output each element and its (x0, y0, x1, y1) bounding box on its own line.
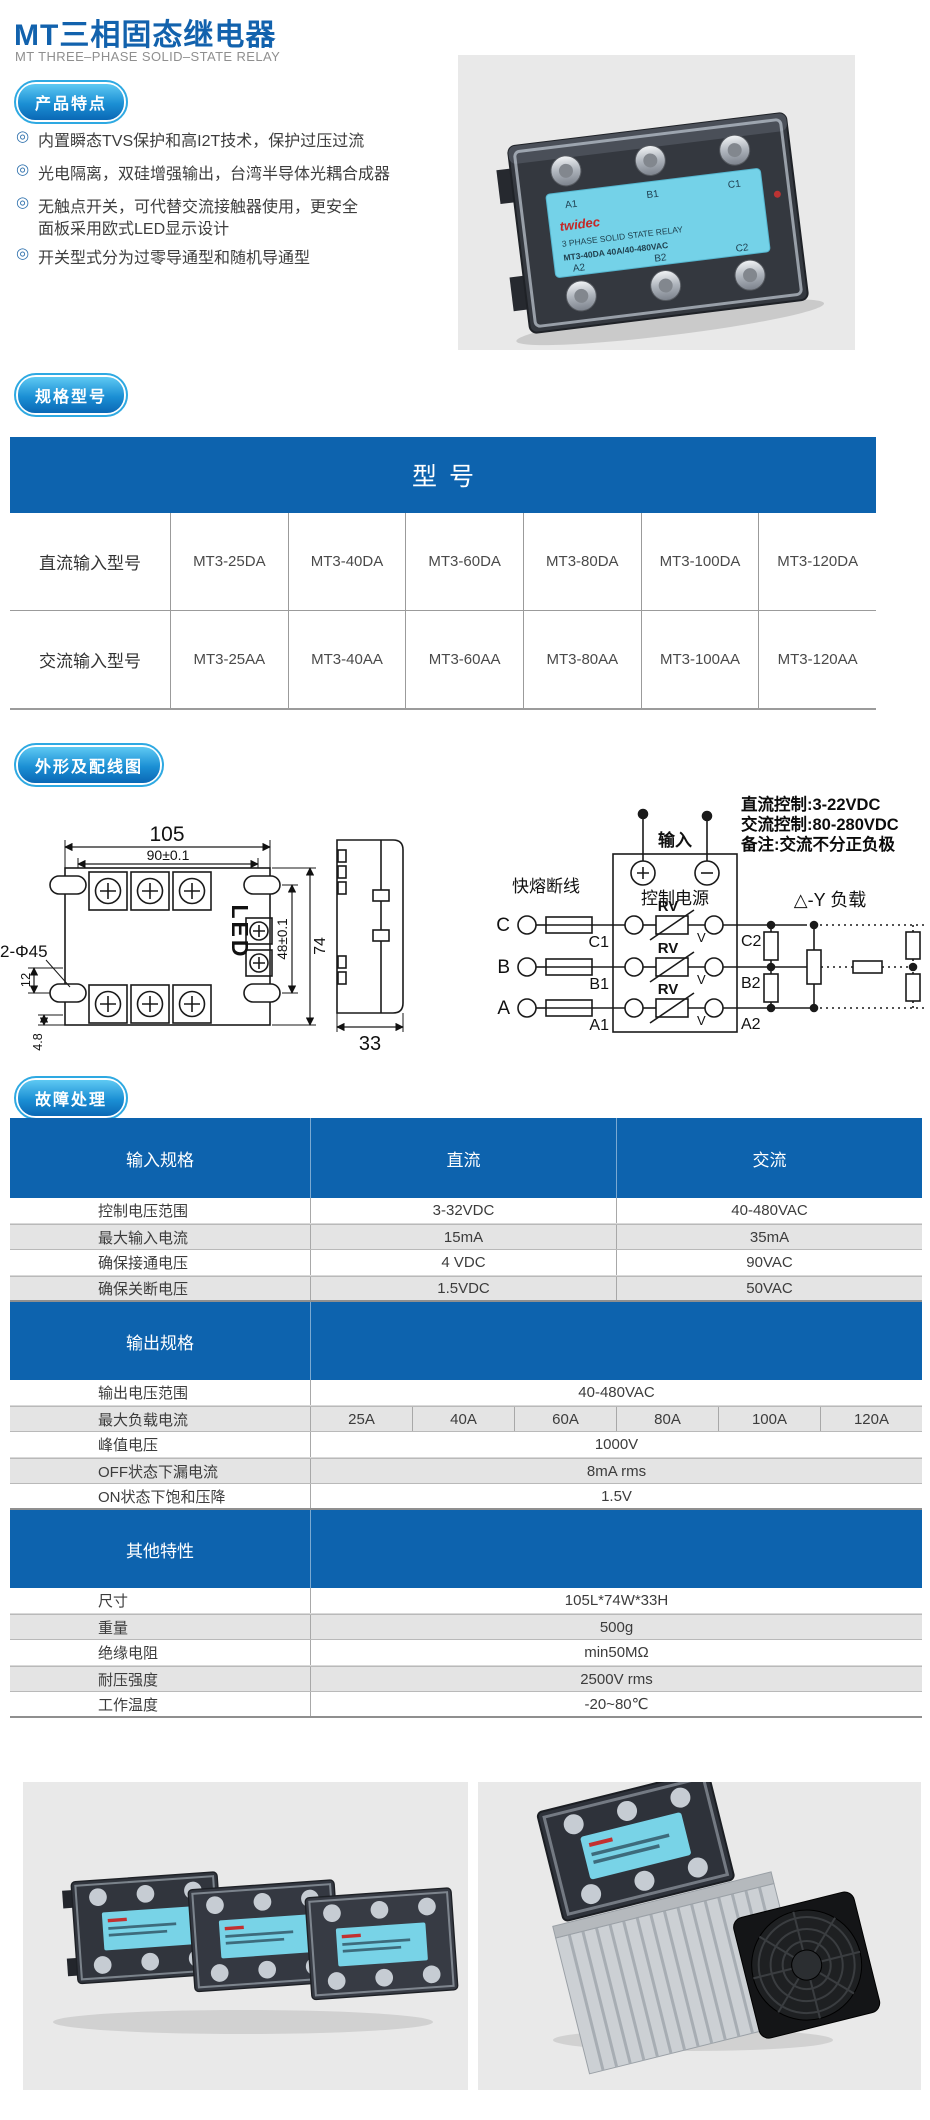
feature-item: ◎ 开关型式分为过零导通型和随机导通型 (16, 244, 310, 268)
wiring-schematic: 直流控制:3-22VDC 交流控制:80-280VDC 备注:交流不分正负极 输… (496, 794, 928, 1034)
table-row: 交流输入型号 MT3-25AA MT3-40AA MT3-60AA MT3-80… (10, 611, 876, 710)
phase-label: C (496, 915, 510, 936)
fuse-label: 快熔断线 (512, 877, 580, 896)
page-subtitle: MT THREE–PHASE SOLID–STATE RELAY (15, 49, 280, 64)
control-note: 备注:交流不分正负极 (740, 834, 895, 854)
row-value: 40-480VAC (310, 1380, 922, 1405)
feature-text: 面板采用欧式LED显示设计 (38, 215, 229, 239)
faults-badge: 故障处理 (14, 1076, 128, 1120)
outline-badge-label: 外形及配线图 (18, 747, 160, 783)
table-row: ON状态下饱和压降 1.5V (10, 1484, 922, 1510)
feature-text: 光电隔离，双硅增强输出，台湾半导体光耦合成器 (38, 160, 390, 184)
three-relays-illustration (23, 1782, 468, 2090)
model-cell: MT3-100AA (641, 611, 759, 708)
side-view-drawing (337, 840, 403, 1032)
table-row: 绝缘电阻 min50MΩ (10, 1640, 922, 1666)
row-label: 输出电压范围 (10, 1380, 310, 1405)
amp-cell: 120A (820, 1407, 922, 1431)
out-terminal-label: C2 (741, 933, 762, 950)
row-value: -20~80℃ (310, 1692, 922, 1716)
table-row: 重量 500g (10, 1614, 922, 1640)
row-label: 确保关断电压 (10, 1277, 310, 1300)
model-cell: MT3-40AA (288, 611, 406, 708)
row-label: 控制电压范围 (10, 1198, 310, 1223)
features-badge: 产品特点 (14, 80, 128, 124)
row-label: ON状态下饱和压降 (10, 1484, 310, 1508)
dim-holes: 2-Φ45 (0, 942, 48, 961)
header-cell: 其他特性 (10, 1510, 310, 1588)
dim-depth: 33 (359, 1033, 381, 1055)
header-cell: 输入规格 (10, 1118, 310, 1198)
amp-cell: 25A (310, 1407, 412, 1431)
row-value: 8mA rms (310, 1459, 922, 1483)
row-value: 1000V (310, 1432, 922, 1457)
header-cell (310, 1510, 922, 1588)
model-cell: MT3-80DA (523, 513, 641, 610)
feature-item: ◎ 光电隔离，双硅增强输出，台湾半导体光耦合成器 (16, 160, 390, 184)
amp-cell: 60A (514, 1407, 616, 1431)
bullet-icon: ◎ (16, 244, 38, 268)
row-label: 最大负载电流 (10, 1407, 310, 1431)
row-label: 交流输入型号 (10, 611, 170, 708)
front-view-drawing (28, 840, 316, 1025)
header-cell: 输出规格 (10, 1302, 310, 1380)
row-label: 重量 (10, 1615, 310, 1639)
row-label: OFF状态下漏电流 (10, 1459, 310, 1483)
table-row: 确保接通电压 4 VDC 90VAC (10, 1250, 922, 1276)
features-badge-label: 产品特点 (18, 84, 124, 120)
feature-item: ◎ 无触点开关，可代替交流接触器使用，更安全 (16, 193, 358, 217)
input-label: 输入 (658, 830, 692, 850)
model-cell: MT3-120DA (758, 513, 876, 610)
amp-cell: 80A (616, 1407, 718, 1431)
table-row: 输出电压范围 40-480VAC (10, 1380, 922, 1406)
terminal-label: C2 (735, 242, 749, 255)
amp-cell: 40A (412, 1407, 514, 1431)
page-title: MT三相固态继电器 (14, 10, 276, 54)
dc-value: 3-32VDC (310, 1198, 616, 1223)
out-terminal-label: B2 (741, 975, 761, 992)
feature-text: 内置瞬态TVS保护和高I2T技术，保护过压过流 (38, 127, 364, 151)
row-label: 峰值电压 (10, 1432, 310, 1457)
product-photo-hero: A1 B1 C1 twidec 3 PHASE SOLID STATE RELA… (458, 55, 855, 350)
feature-text: 开关型式分为过零导通型和随机导通型 (38, 244, 310, 268)
table-row: 耐压强度 2500V rms (10, 1666, 922, 1692)
row-label: 确保接通电压 (10, 1250, 310, 1275)
row-label: 直流输入型号 (10, 513, 170, 610)
table-row: 直流输入型号 MT3-25DA MT3-40DA MT3-60DA MT3-80… (10, 513, 876, 611)
dim-height-outer: 74 (312, 937, 329, 955)
row-value: min50MΩ (310, 1640, 922, 1665)
header-cell (310, 1302, 922, 1380)
terminal-label: B2 (654, 252, 668, 264)
input-spec-header: 输入规格 直流 交流 (10, 1118, 922, 1198)
product-page: MT三相固态继电器 MT THREE–PHASE SOLID–STATE REL… (0, 0, 930, 2120)
product-photo-group (23, 1782, 468, 2090)
table-row: 工作温度 -20~80℃ (10, 1692, 922, 1718)
in-terminal-label: B1 (589, 976, 609, 993)
dim-offset2: 4.8 (31, 1033, 45, 1050)
dc-value: 15mA (310, 1225, 616, 1249)
control-note: 交流控制:80-280VDC (741, 814, 899, 834)
product-photo-heatsink (478, 1782, 921, 2090)
ac-value: 50VAC (616, 1277, 922, 1300)
other-spec-header: 其他特性 (10, 1510, 922, 1588)
model-cell: MT3-25AA (170, 611, 288, 708)
terminal-label: B1 (646, 189, 660, 201)
dim-offset1: 12 (18, 973, 33, 987)
model-cell: MT3-60DA (405, 513, 523, 610)
control-note: 直流控制:3-22VDC (741, 794, 880, 814)
dim-width-inner: 90±0.1 (147, 847, 190, 863)
in-terminal-label: C1 (589, 934, 610, 951)
row-label: 最大输入电流 (10, 1225, 310, 1249)
varistor-v: V (697, 1013, 706, 1028)
ac-value: 90VAC (616, 1250, 922, 1275)
phase-label: B (497, 957, 510, 978)
dim-height-inner: 48±0.1 (275, 918, 290, 959)
row-value: 1.5V (310, 1484, 922, 1508)
output-spec-header: 输出规格 (10, 1302, 922, 1380)
ac-value: 35mA (616, 1225, 922, 1249)
model-cell: MT3-80AA (523, 611, 641, 708)
model-cell: MT3-40DA (288, 513, 406, 610)
model-table: 型号 直流输入型号 MT3-25DA MT3-40DA MT3-60DA MT3… (10, 437, 876, 710)
relay-illustration: A1 B1 C1 twidec 3 PHASE SOLID STATE RELA… (458, 55, 855, 350)
models-badge-label: 规格型号 (18, 377, 124, 413)
model-cell: MT3-100DA (641, 513, 759, 610)
table-row: 控制电压范围 3-32VDC 40-480VAC (10, 1198, 922, 1224)
table-row: 最大输入电流 15mA 35mA (10, 1224, 922, 1250)
table-row: 尺寸 105L*74W*33H (10, 1588, 922, 1614)
dc-value: 1.5VDC (310, 1277, 616, 1300)
varistor-v: V (697, 972, 706, 987)
model-cell: MT3-120AA (758, 611, 876, 708)
relay-mini (62, 1872, 458, 2000)
varistor-label: RV (658, 898, 679, 915)
feature-text: 无触点开关，可代替交流接触器使用，更安全 (38, 193, 358, 217)
heatsink-fan-illustration (478, 1782, 921, 2090)
table-row: OFF状态下漏电流 8mA rms (10, 1458, 922, 1484)
varistor-label: RV (658, 940, 679, 957)
spec-table: 输入规格 直流 交流 控制电压范围 3-32VDC 40-480VAC 最大输入… (10, 1118, 922, 1718)
table-row: 峰值电压 1000V (10, 1432, 922, 1458)
amp-cell: 100A (718, 1407, 820, 1431)
header-cell: 交流 (616, 1118, 922, 1198)
phase-label: A (497, 998, 510, 1019)
table-row: 最大负载电流 25A 40A 60A 80A 100A 120A (10, 1406, 922, 1432)
dc-value: 4 VDC (310, 1250, 616, 1275)
row-value: 500g (310, 1615, 922, 1639)
terminal-label: A2 (572, 262, 586, 274)
header-cell: 直流 (310, 1118, 616, 1198)
load-label: △-Y 负载 (794, 890, 867, 910)
bullet-icon: ◎ (16, 160, 38, 184)
bullet-icon: ◎ (16, 193, 38, 217)
models-badge: 规格型号 (14, 373, 128, 417)
row-value: 105L*74W*33H (310, 1588, 922, 1613)
row-label: 绝缘电阻 (10, 1640, 310, 1665)
row-label: 耐压强度 (10, 1667, 310, 1691)
feature-item: ◎ 内置瞬态TVS保护和高I2T技术，保护过压过流 (16, 127, 364, 151)
terminal-label: C1 (727, 179, 741, 192)
varistor-v: V (697, 930, 706, 945)
model-table-header: 型号 (10, 437, 876, 513)
faults-badge-label: 故障处理 (18, 1080, 124, 1116)
row-label: 尺寸 (10, 1588, 310, 1613)
dim-width-outer: 105 (149, 823, 184, 846)
varistor-label: RV (658, 981, 679, 998)
model-cell: MT3-25DA (170, 513, 288, 610)
bullet-icon (16, 215, 38, 239)
led-marking: LED (227, 905, 253, 960)
model-cell: MT3-60AA (405, 611, 523, 708)
row-label: 工作温度 (10, 1692, 310, 1716)
bullet-icon: ◎ (16, 127, 38, 151)
out-terminal-label: A2 (741, 1016, 761, 1033)
terminal-label: A1 (565, 199, 579, 211)
table-row: 确保关断电压 1.5VDC 50VAC (10, 1276, 922, 1302)
in-terminal-label: A1 (589, 1017, 609, 1034)
feature-item: 面板采用欧式LED显示设计 (16, 215, 229, 239)
ac-value: 40-480VAC (616, 1198, 922, 1223)
outline-wiring-diagram: 105 90±0.1 74 48±0.1 12 4.8 2-Φ45 LED 33… (0, 780, 930, 1070)
row-value: 2500V rms (310, 1667, 922, 1691)
